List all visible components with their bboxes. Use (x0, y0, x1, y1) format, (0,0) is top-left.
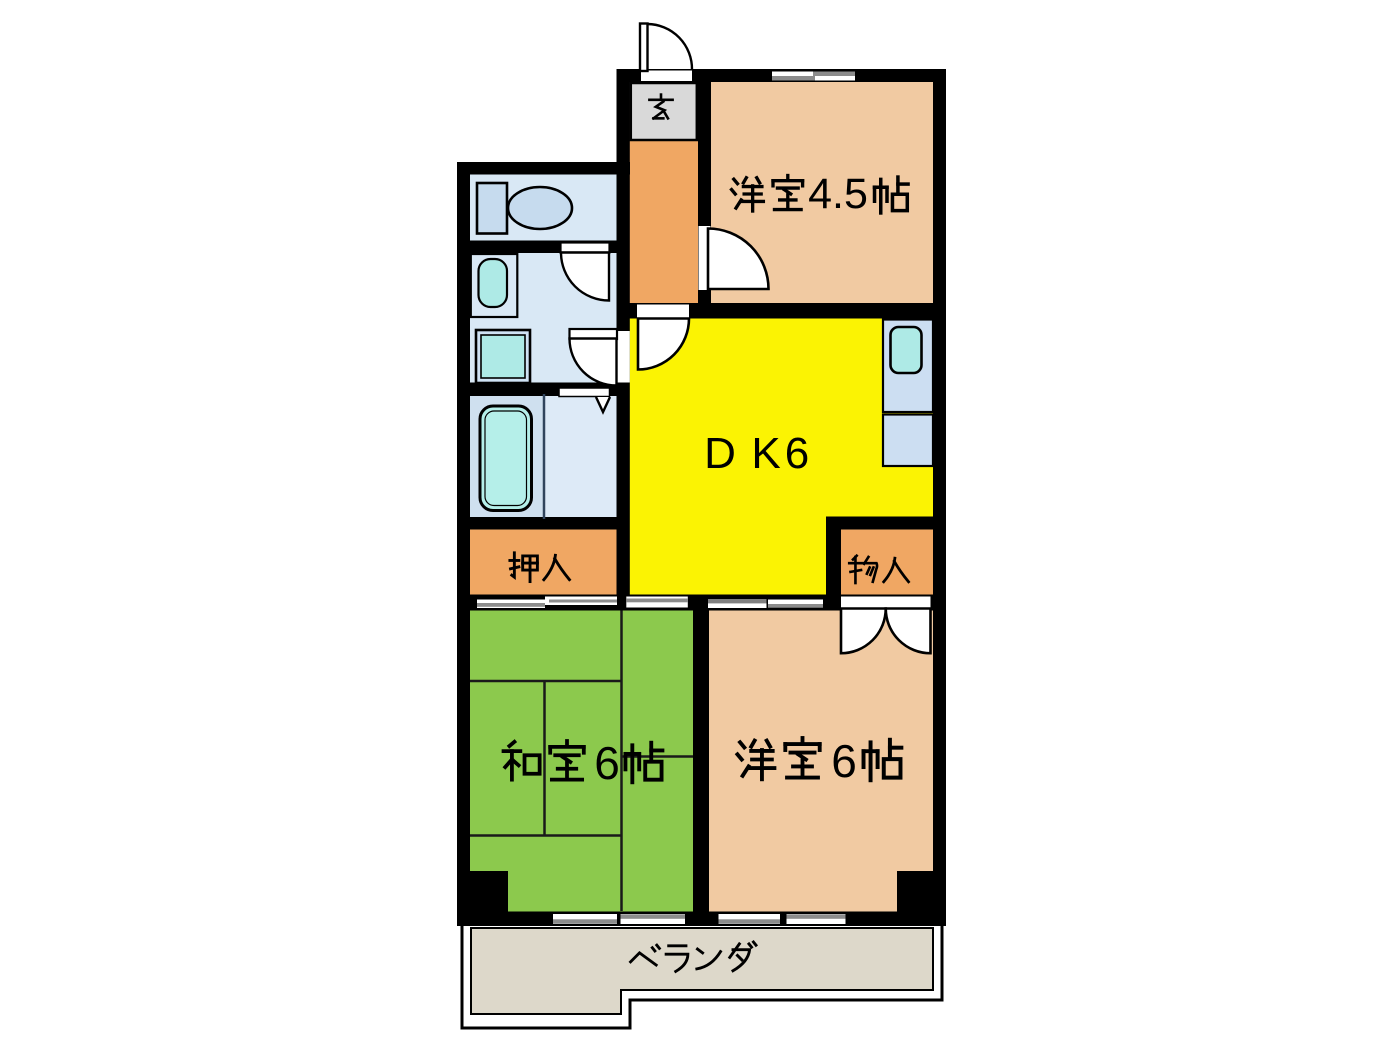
svg-text:4.5: 4.5 (808, 170, 868, 218)
svg-text:6: 6 (831, 735, 857, 787)
svg-text:6: 6 (594, 737, 620, 789)
svg-text:K: K (751, 429, 780, 478)
svg-text:6: 6 (785, 429, 809, 478)
svg-text:D: D (704, 429, 736, 478)
